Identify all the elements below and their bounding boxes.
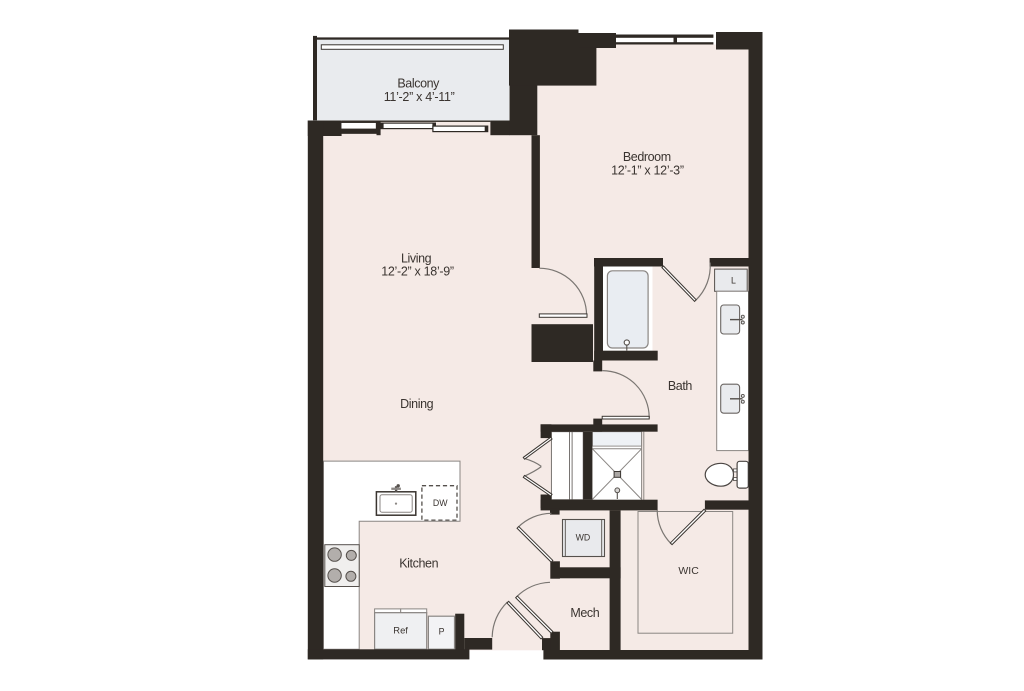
svg-text:WIC: WIC [678, 565, 699, 577]
svg-text:L: L [731, 276, 736, 286]
svg-text:Balcony: Balcony [397, 77, 440, 91]
svg-text:12’-1” x 12’-3”: 12’-1” x 12’-3” [611, 164, 684, 178]
svg-text:WD: WD [576, 533, 591, 543]
svg-text:Bath: Bath [668, 379, 693, 393]
svg-text:Bedroom: Bedroom [623, 150, 671, 164]
svg-text:Ref: Ref [393, 624, 408, 635]
svg-text:Dining: Dining [400, 397, 433, 411]
svg-text:12’-2” x 18’-9”: 12’-2” x 18’-9” [381, 265, 454, 279]
svg-text:11’-2” x 4’-11”: 11’-2” x 4’-11” [384, 90, 455, 104]
svg-text:Living: Living [401, 252, 432, 266]
svg-text:P: P [439, 627, 445, 637]
svg-text:Mech: Mech [570, 606, 599, 620]
svg-text:DW: DW [433, 498, 448, 508]
svg-text:Kitchen: Kitchen [399, 557, 438, 571]
